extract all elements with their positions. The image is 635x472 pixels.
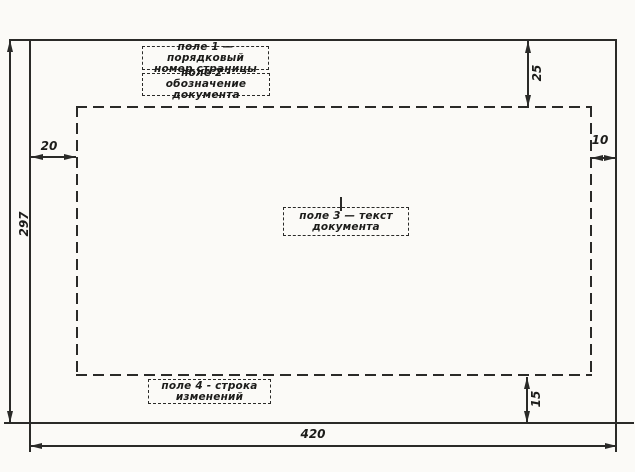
field3-label-line2: документа: [286, 222, 406, 233]
field3-label-box: поле 3 — текст документа: [283, 207, 409, 236]
dimension-arrow-up-icon: [7, 40, 13, 52]
sheet-frame-bottom-line: [4, 422, 634, 424]
text-area-boundary-left: [76, 106, 78, 376]
field2-label-line1: поле 2 - обозначение: [145, 68, 267, 90]
dim-margin-bottom-label: 15: [529, 387, 543, 411]
field2-label-line2: документа: [145, 90, 267, 101]
sheet-frame-left-line: [29, 39, 31, 452]
field1-label-line1: поле 1 — порядковый: [145, 42, 266, 64]
dim-sheet-height-label: 297: [17, 207, 31, 241]
field4-label-line1: поле 4 - строка: [151, 381, 268, 392]
dimension-arrow-left-icon: [591, 155, 603, 161]
field4-label-line2: изменений: [151, 392, 268, 403]
dimension-arrow-left-icon: [30, 443, 42, 449]
dimension-arrow-left-icon: [31, 154, 43, 160]
text-area-boundary-top: [76, 106, 592, 108]
sheet-frame-right-line: [615, 39, 617, 452]
dim-sheet-width-line: [31, 445, 616, 447]
field4-label-box: поле 4 - строка изменений: [148, 379, 271, 404]
field3-label-line1: поле 3 — текст: [286, 211, 406, 222]
dimension-arrow-right-icon: [64, 154, 76, 160]
dimension-arrow-down-icon: [525, 95, 531, 107]
page-layout-diagram: 297 420 25 15 20 10 поле 1 — порядковый …: [0, 0, 635, 472]
dimension-arrow-right-icon: [604, 155, 616, 161]
dimension-arrow-down-icon: [524, 411, 530, 423]
dim-margin-right-label: 10: [585, 133, 615, 147]
text-area-boundary-bottom: [76, 374, 592, 376]
dimension-arrow-up-icon: [525, 41, 531, 53]
dimension-arrow-down-icon: [7, 411, 13, 423]
dim-margin-left-label: 20: [34, 139, 64, 153]
dim-sheet-width-label: 420: [283, 427, 343, 441]
field2-label-box: поле 2 - обозначение документа: [142, 73, 270, 96]
dimension-arrow-right-icon: [605, 443, 617, 449]
dim-margin-top-label: 25: [530, 61, 544, 85]
dim-sheet-height-line: [9, 41, 11, 423]
